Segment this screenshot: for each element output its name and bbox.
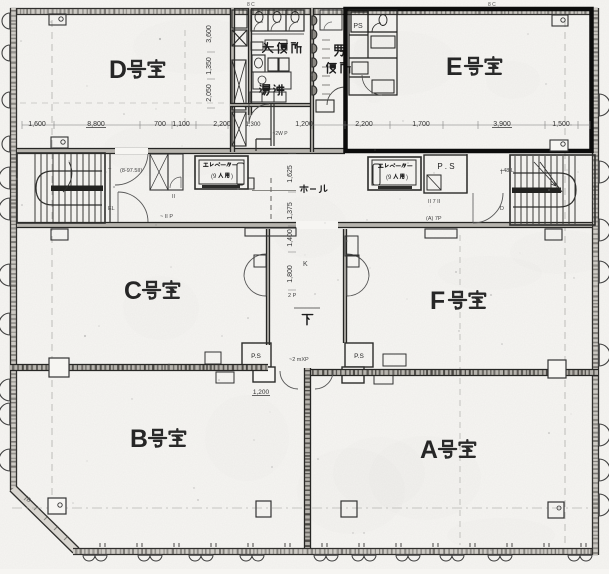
svg-text:1,500: 1,500 — [552, 121, 570, 128]
svg-text:P . S: P . S — [437, 162, 454, 171]
svg-text:2,200: 2,200 — [355, 121, 373, 128]
svg-text:2 P: 2 P — [288, 293, 297, 299]
svg-text:C: C — [124, 278, 142, 305]
svg-text:P.S: P.S — [354, 353, 364, 360]
svg-text:3,900: 3,900 — [493, 121, 511, 128]
svg-text:1,600: 1,600 — [28, 121, 46, 128]
svg-text:8,800: 8,800 — [87, 121, 105, 128]
svg-text:2,050: 2,050 — [206, 84, 213, 102]
svg-text:+48IL: +48IL — [500, 168, 514, 174]
svg-text:(8-97.5II): (8-97.5II) — [120, 168, 142, 174]
svg-text:B: B — [130, 426, 148, 453]
svg-text:(A) 7P: (A) 7P — [426, 216, 442, 222]
svg-text:1,200: 1,200 — [253, 389, 270, 396]
svg-text:8 C: 8 C — [488, 2, 496, 8]
svg-text:): ) — [406, 175, 408, 181]
svg-text:1,625: 1,625 — [287, 165, 294, 183]
svg-text:1,800: 1,800 — [287, 265, 294, 283]
svg-text:8 C: 8 C — [247, 2, 255, 8]
svg-text:2,200: 2,200 — [213, 121, 231, 128]
svg-text:D: D — [109, 57, 127, 84]
svg-text:~2 mXP: ~2 mXP — [289, 357, 309, 363]
svg-text:D: D — [500, 206, 504, 212]
svg-text:1,350: 1,350 — [206, 57, 213, 75]
svg-text:700: 700 — [154, 121, 166, 128]
svg-text:~ II P: ~ II P — [160, 214, 173, 220]
svg-text:1,375: 1,375 — [287, 202, 294, 220]
svg-text:1,700: 1,700 — [412, 121, 430, 128]
svg-text:II 7 II: II 7 II — [428, 199, 441, 205]
svg-text:1,200: 1,200 — [295, 121, 313, 128]
svg-text:1,300: 1,300 — [245, 122, 261, 128]
svg-text:K: K — [303, 261, 308, 268]
svg-text:F: F — [430, 288, 445, 315]
svg-text:II: II — [172, 194, 176, 200]
svg-text:P.S: P.S — [251, 353, 261, 360]
svg-text:): ) — [231, 174, 233, 180]
svg-text:3,600: 3,600 — [206, 25, 213, 43]
svg-text:1,100: 1,100 — [172, 121, 190, 128]
svg-text:1,400: 1,400 — [287, 229, 294, 247]
svg-text:(9: (9 — [211, 174, 217, 180]
svg-text:(9: (9 — [386, 175, 392, 181]
svg-text:PS: PS — [353, 23, 363, 30]
svg-text:~2W P: ~2W P — [272, 131, 288, 137]
svg-text:EL: EL — [108, 206, 115, 212]
svg-text:A: A — [420, 437, 438, 464]
svg-text:E: E — [446, 54, 463, 81]
